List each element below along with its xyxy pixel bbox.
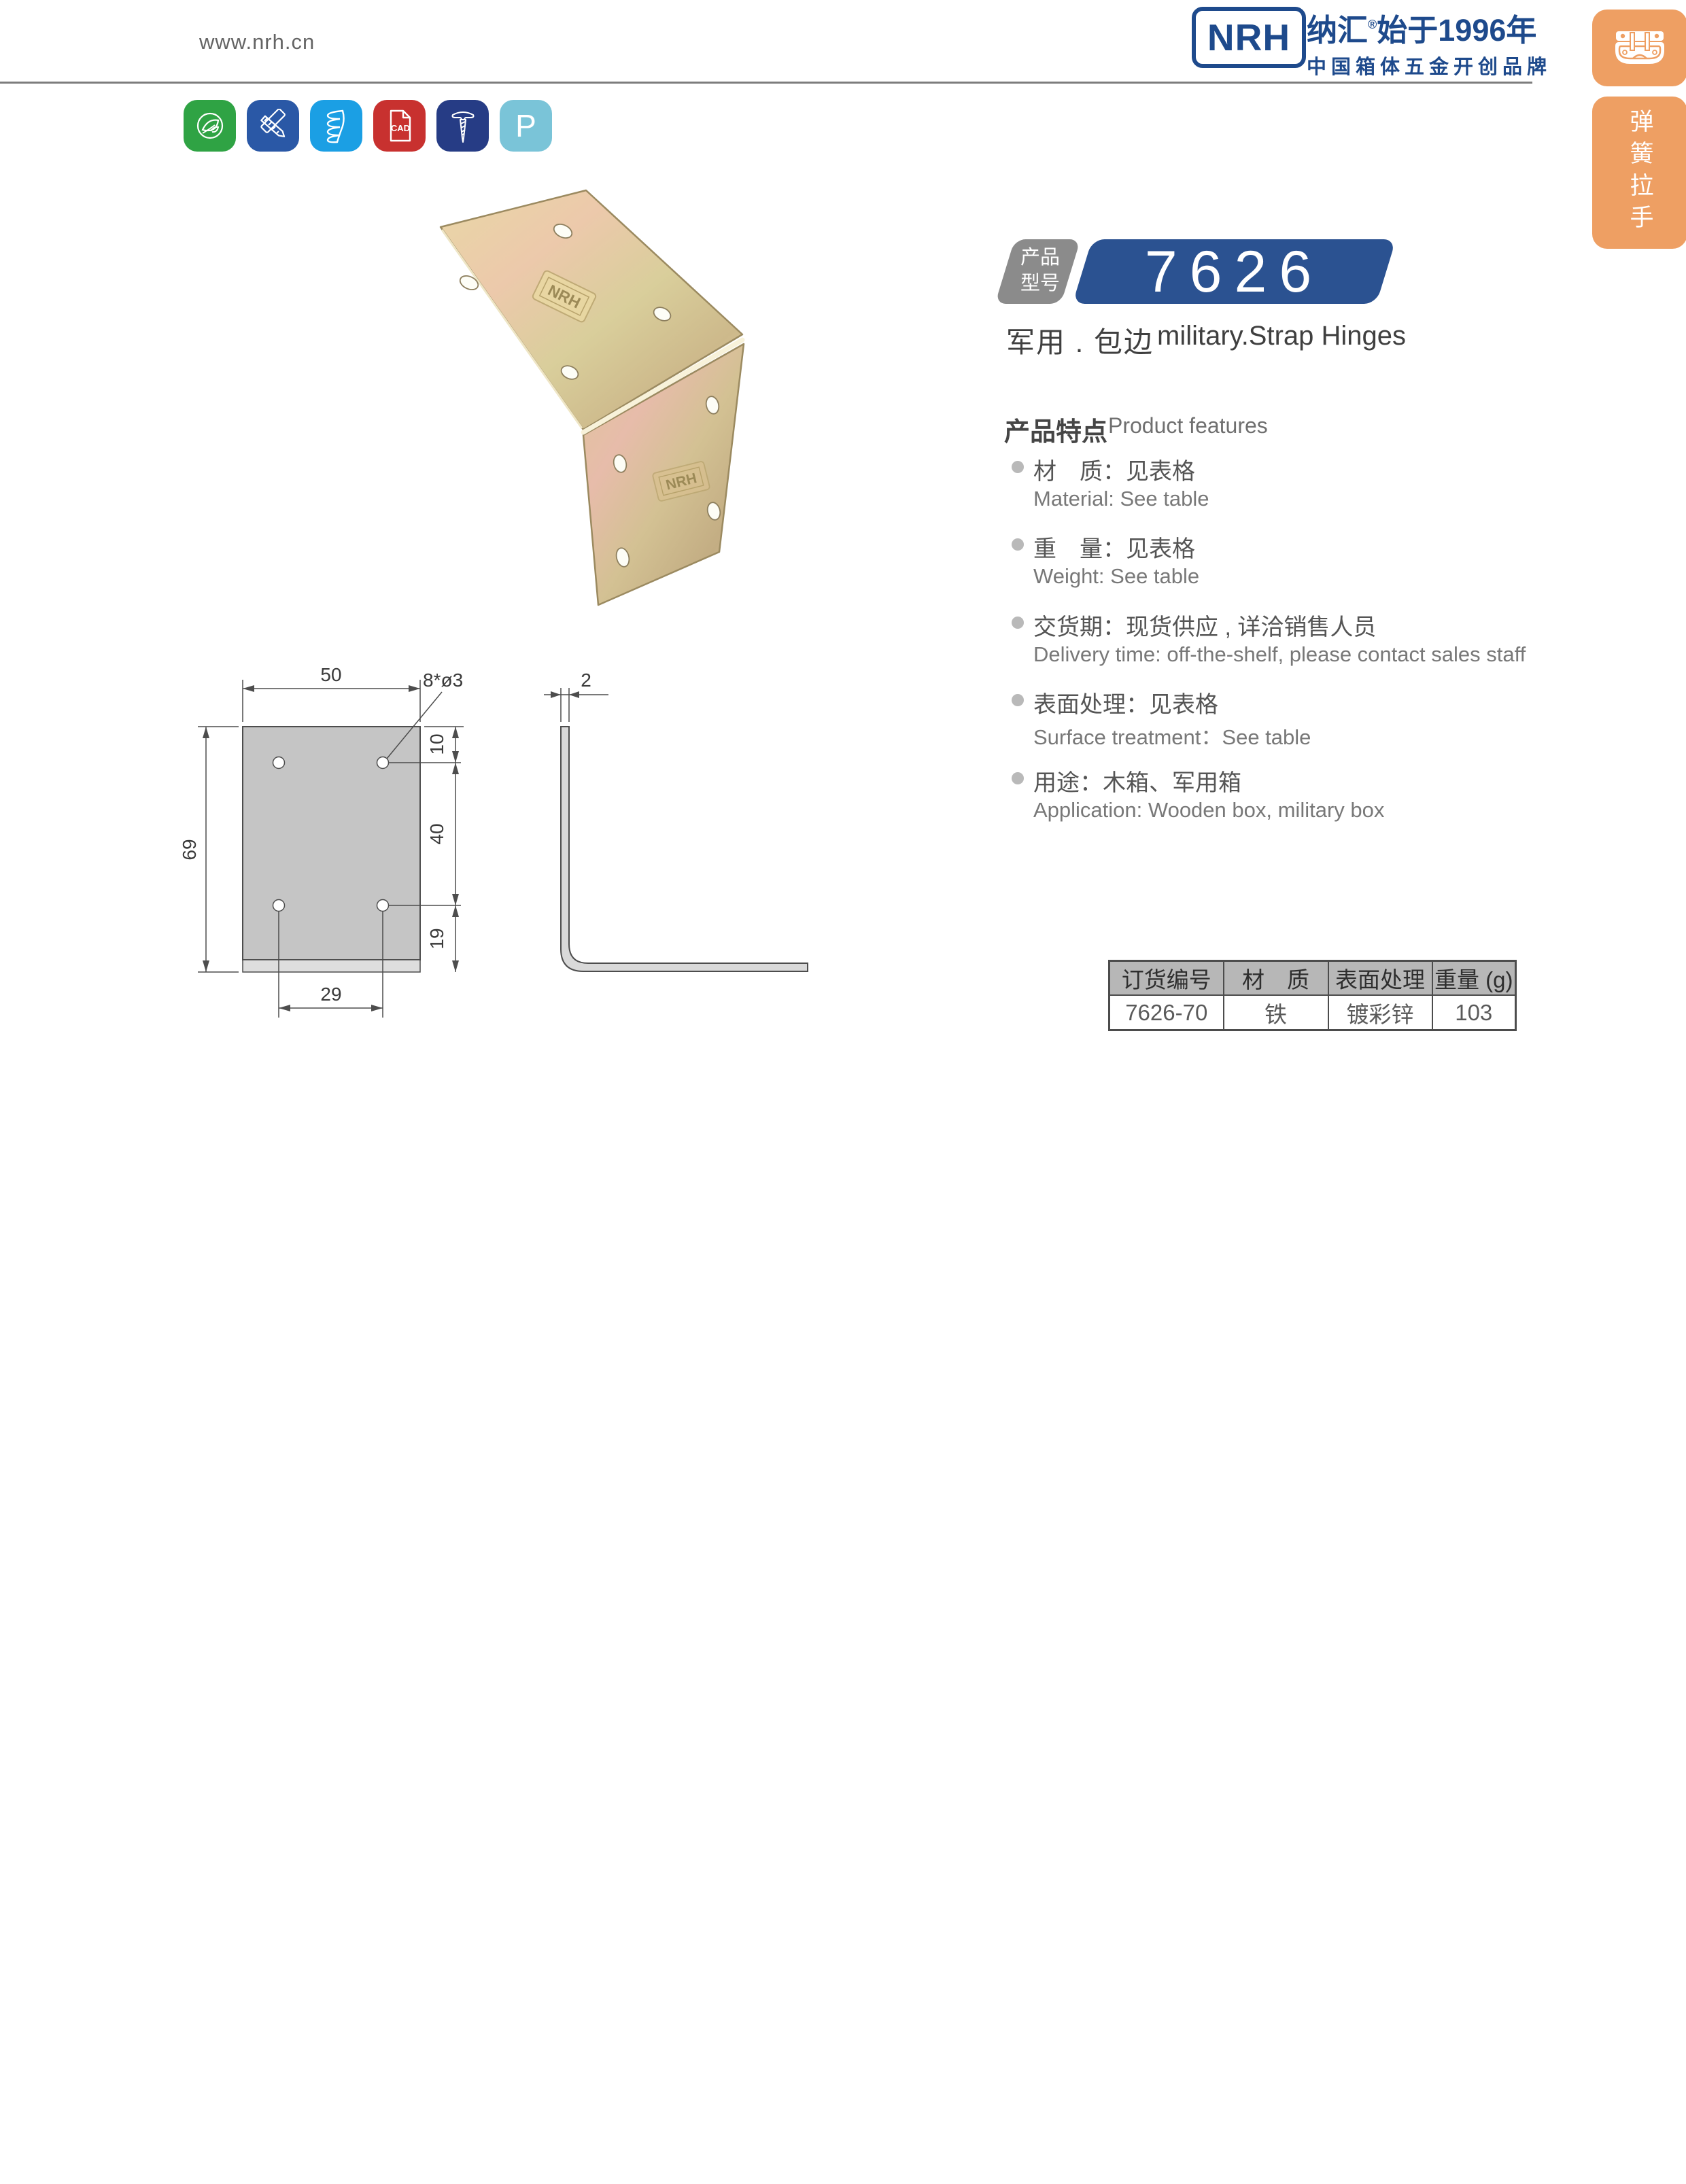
technical-drawing: 50 8*ø3 10 40 19 69 (170, 653, 850, 1033)
svg-text:40: 40 (426, 823, 447, 844)
dim-thickness-2: 2 (544, 670, 608, 722)
l-bracket: NRH NRH (441, 190, 744, 605)
spec-table-row: 7626-70 铁 镀彩锌 103 (1109, 995, 1516, 1030)
bullet-dot (1012, 617, 1024, 629)
svg-text:8*ø3: 8*ø3 (423, 670, 463, 691)
cell-surface: 镀彩锌 (1328, 995, 1432, 1030)
catalog-page: www.nrh.cn NRH 纳汇®始于1996年 中国箱体五金开创品牌 弹簧拉… (0, 0, 1686, 2184)
site-url: www.nrh.cn (199, 30, 315, 54)
feature-item-cn: 材 质：见表格 (1033, 453, 1195, 486)
feature-item-en: Surface treatment：See table (1033, 720, 1311, 750)
category-cn: 军用 . 包边 (1006, 319, 1154, 361)
nrh-logo: NRH (1192, 7, 1306, 68)
dim-chain-right: 10 40 19 (424, 727, 464, 972)
features-title-en: Product features (1108, 413, 1268, 438)
svg-text:50: 50 (320, 664, 341, 685)
design-tools-icon (247, 100, 299, 152)
spec-table-header-row: 订货编号 材 质 表面处理 重量 (g) (1109, 961, 1516, 996)
header-divider (0, 82, 1532, 84)
brand-line2: 中国箱体五金开创品牌 (1307, 51, 1551, 80)
registered-mark: ® (1368, 18, 1377, 31)
feature-item-cn: 用途：木箱、军用箱 (1033, 764, 1241, 797)
model-badge-label: 产品 型号 (1008, 245, 1073, 296)
brand-block: 纳汇®始于1996年 中国箱体五金开创品牌 (1307, 5, 1551, 80)
feature-item-en: Weight: See table (1033, 564, 1199, 589)
dim-width-50: 50 (243, 664, 420, 722)
col-weight: 重量 (g) (1432, 961, 1516, 996)
bullet-dot (1012, 772, 1024, 784)
spring-icon (310, 100, 362, 152)
bullet-dot (1012, 538, 1024, 551)
model-number: 7626 (1082, 239, 1386, 304)
dim-height-69: 69 (179, 727, 239, 972)
feature-item-en: Material: See table (1033, 487, 1209, 511)
col-order-number: 订货编号 (1109, 961, 1224, 996)
feature-item-en: Application: Wooden box, military box (1033, 798, 1384, 822)
svg-text:CAD: CAD (390, 123, 409, 133)
sidebar-tab-spring-handle[interactable]: 弹簧拉手 (1592, 97, 1686, 249)
cell-order-number: 7626-70 (1109, 995, 1224, 1030)
letter-p-icon: P (500, 100, 552, 152)
front-view (243, 727, 420, 972)
screw-icon (436, 100, 489, 152)
svg-text:19: 19 (426, 928, 447, 949)
bullet-dot (1012, 694, 1024, 706)
svg-text:2: 2 (581, 670, 591, 691)
col-surface: 表面处理 (1328, 961, 1432, 996)
eco-leaf-icon (184, 100, 236, 152)
sidebar-tab-label: 弹簧拉手 (1623, 109, 1657, 237)
spec-table: 订货编号 材 质 表面处理 重量 (g) 7626-70 铁 镀彩锌 103 (1108, 960, 1517, 1031)
brand-line1: 纳汇®始于1996年 (1307, 5, 1551, 50)
svg-text:10: 10 (426, 733, 447, 755)
col-material: 材 质 (1224, 961, 1328, 996)
product-photo: NRH NRH (377, 170, 806, 625)
feature-item-en: Delivery time: off-the-shelf, please con… (1033, 642, 1526, 667)
cell-material: 铁 (1224, 995, 1328, 1030)
category-en: military.Strap Hinges (1157, 321, 1406, 351)
latch-icon (1614, 30, 1666, 67)
nrh-logo-text: NRH (1207, 16, 1290, 59)
feature-item-cn: 表面处理：见表格 (1033, 686, 1218, 719)
side-view: 2 (544, 670, 808, 971)
feature-item-cn: 交货期：现货供应 , 详洽销售人员 (1033, 608, 1376, 642)
cad-file-icon: CAD (373, 100, 426, 152)
bullet-dot (1012, 461, 1024, 473)
sidebar-tab-latch[interactable] (1592, 10, 1686, 86)
feature-item-cn: 重 量：见表格 (1033, 530, 1195, 564)
svg-text:69: 69 (179, 839, 200, 860)
features-title-cn: 产品特点 (1004, 411, 1107, 448)
svg-text:29: 29 (320, 984, 341, 1005)
cell-weight: 103 (1432, 995, 1516, 1030)
